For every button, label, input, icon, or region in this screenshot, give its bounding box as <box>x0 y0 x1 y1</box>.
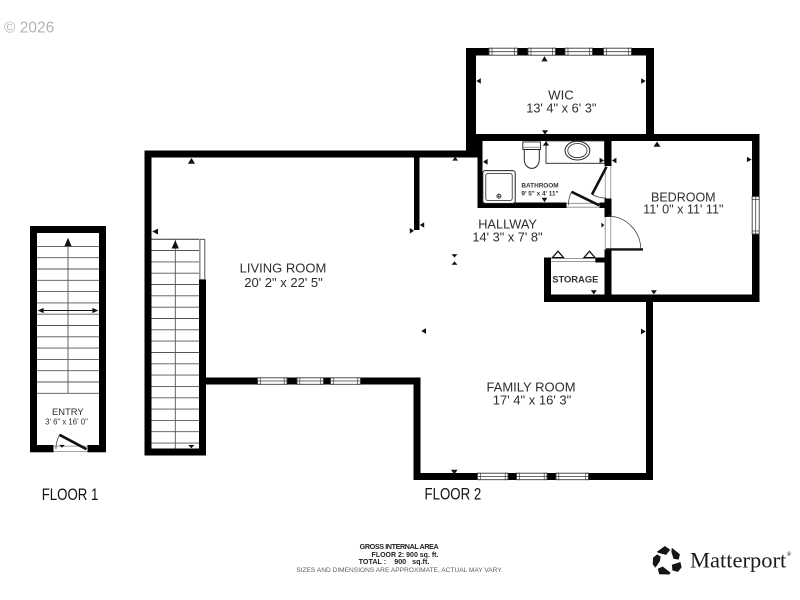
svg-text:9' 5" x 4' 11": 9' 5" x 4' 11" <box>521 190 558 197</box>
svg-text:LIVING ROOM: LIVING ROOM <box>240 261 327 276</box>
svg-text:20' 2" x 22' 5": 20' 2" x 22' 5" <box>244 275 323 290</box>
svg-text:17' 4" x 16' 3": 17' 4" x 16' 3" <box>493 392 572 407</box>
svg-text:11' 0" x 11' 11": 11' 0" x 11' 11" <box>643 203 723 217</box>
svg-text:13' 4" x 6' 3": 13' 4" x 6' 3" <box>526 101 596 116</box>
svg-text:GROSS INTERNAL AREA: GROSS INTERNAL AREA <box>360 542 439 551</box>
svg-text:STORAGE: STORAGE <box>552 274 598 285</box>
svg-text:ENTRY: ENTRY <box>52 406 84 417</box>
svg-text:BATHROOM: BATHROOM <box>521 183 558 190</box>
svg-text:14' 3" x 7' 8": 14' 3" x 7' 8" <box>472 229 542 244</box>
svg-text:TOTAL : 900 sq.ft.: TOTAL : 900 sq.ft. <box>359 557 430 566</box>
svg-text:FLOOR 1: FLOOR 1 <box>42 486 99 505</box>
svg-text:3' 6" x 16' 0": 3' 6" x 16' 0" <box>45 418 88 427</box>
svg-text:FLOOR 2: FLOOR 2 <box>425 485 482 504</box>
svg-text:Matterport: Matterport <box>690 548 787 573</box>
svg-text:®: ® <box>787 551 792 558</box>
svg-text:SIZES AND DIMENSIONS ARE APPRO: SIZES AND DIMENSIONS ARE APPROXIMATE, AC… <box>296 567 503 574</box>
svg-text:© 2026: © 2026 <box>4 20 54 37</box>
